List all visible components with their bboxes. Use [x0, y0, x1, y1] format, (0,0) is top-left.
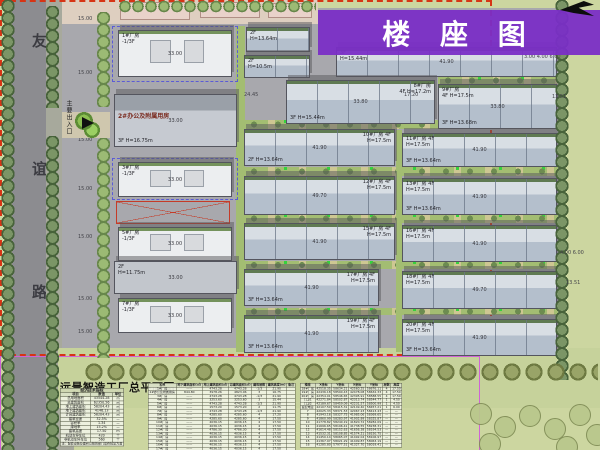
- building-dimension: 33.00: [115, 275, 236, 281]
- econ-indicators-table: 经济技术指标项目数值单位总用地面积43544.28㎡总建筑面积62350.56㎡…: [60, 388, 124, 446]
- dimension-text: 4.00 6.00: [560, 250, 584, 256]
- tree-row: [96, 138, 111, 358]
- building-label: H=17.5m: [367, 232, 391, 238]
- building-label: 4F H=17.5m: [442, 93, 474, 99]
- building-label: 3F H=16.75m: [118, 138, 153, 144]
- table-cell: 41285.80: [315, 443, 332, 447]
- building-x: [116, 201, 230, 224]
- tree-row: [118, 0, 316, 13]
- building-dimension: 41.90: [245, 285, 378, 291]
- building-5: 5#厂房-1/3F33.00: [118, 227, 232, 261]
- building-dimension: 33.00: [115, 118, 236, 124]
- building-label: 2F H=13.64m: [248, 157, 283, 163]
- scatter-tree: [556, 436, 578, 450]
- scatter-tree: [470, 403, 492, 425]
- building-label: -1/3F: [122, 39, 135, 45]
- dimension-text: 15.00: [78, 234, 92, 240]
- building-dimension: 33.00: [119, 51, 231, 57]
- scatter-tree: [519, 405, 541, 427]
- building-label: H=17.5m: [367, 185, 391, 191]
- dimension-text: 15.00: [78, 70, 92, 76]
- building-label: H=17.5m: [351, 278, 375, 284]
- building-label: H=17.5m: [406, 187, 430, 193]
- econ-indicators-table: 经济技术指标项目数值单位总用地面积43544.28㎡总建筑面积62350.56㎡…: [60, 388, 124, 446]
- building-s2: 2FH=10.5m: [244, 55, 310, 78]
- building-16: 16#厂房 4FH=17.5m41.90: [402, 225, 557, 262]
- building-label: 3F H=13.64m: [406, 206, 441, 212]
- building-label: H=17.5m: [406, 280, 430, 286]
- building-dimension: 33.80: [287, 99, 434, 105]
- table-note: 注：配套设施及面积以规划部门最终批复为准: [60, 442, 123, 446]
- building-label: 3F H=15.44m: [290, 115, 325, 121]
- building-label: 3F H=13.68m: [442, 120, 477, 126]
- building-dimension: 49.70: [403, 287, 556, 293]
- building-dimension: 41.90: [245, 145, 394, 151]
- building-dimension: 33.00: [119, 177, 231, 183]
- building-schedule-table: 名称地下建筑面积(㎡)地上建筑面积(㎡)总建筑面积(㎡)建筑层数建筑高度(m)备…: [148, 383, 296, 450]
- building-label: H=10.5m: [248, 64, 272, 70]
- site-plan: 友 谊 路 1#厂房-1/3F33.002#办公及附属用房3F H=16.75m…: [0, 0, 600, 450]
- building-7: 7#厂房-1/3F33.00: [118, 298, 232, 333]
- building-dimension: 41.90: [245, 239, 394, 245]
- building-dimension: 41.90: [403, 335, 556, 341]
- building-label: 3F H=13.64m: [406, 158, 441, 164]
- table-header-cell: 备注: [287, 383, 296, 387]
- scatter-tree: [479, 433, 501, 450]
- building-label: H=17.5m: [367, 138, 391, 144]
- building-label: H=17.5m: [406, 328, 430, 334]
- building-s1: 2FH=13.64m: [246, 27, 310, 52]
- scatter-tree: [586, 424, 600, 446]
- building-20: 20#厂房 4FH=17.5m3F H=13.64m41.90: [402, 319, 557, 356]
- building-1: 1#厂房-1/3F33.00: [118, 30, 232, 77]
- building-schedule-table: 名称地下建筑面积(㎡)地上建筑面积(㎡)总建筑面积(㎡)建筑层数建筑高度(m)备…: [148, 383, 296, 450]
- dimension-text: 15.00: [78, 16, 92, 22]
- building-label: H=17.5m: [351, 324, 375, 330]
- building-dimension: 41.90: [403, 241, 556, 247]
- building-13: 13#厂房 4FH=17.5m3F H=13.64m41.90: [402, 178, 557, 215]
- building-dimension: 41.90: [403, 147, 556, 153]
- table-cell: 58019.41: [366, 443, 383, 447]
- tree-row: [96, 12, 111, 107]
- table-cell: 57977.51: [332, 443, 349, 447]
- building-18: 18#厂房 4FH=17.5m49.70: [402, 271, 557, 309]
- building-label: 3F H=13.64m: [248, 344, 283, 350]
- building-2: 2#办公及附属用房3F H=16.75m33.00: [114, 94, 237, 147]
- table-cell: 41327.70: [349, 443, 366, 447]
- building-9: 9#厂房4F H=17.5m3F H=13.68m33.80: [438, 84, 557, 129]
- building-label: H=17.5m: [406, 234, 430, 240]
- building-dimension: 41.90: [245, 331, 378, 337]
- tree-row: [44, 136, 61, 450]
- dimension-text: 13.51: [552, 94, 566, 100]
- building-dimension: 33.00: [119, 241, 231, 247]
- title-banner: 楼 座 图: [318, 10, 600, 55]
- lawn-strip: [438, 77, 558, 84]
- coordinates-table: 楼座X坐标Y坐标X坐标Y坐标层数高度18#厂房42518.3558634.214…: [300, 383, 402, 447]
- building-3: 3#厂房-1/3F33.00: [118, 162, 232, 197]
- banner-title: 楼 座 图: [382, 13, 536, 53]
- building-dimension: 33.80: [439, 104, 556, 110]
- scatter-tree: [569, 404, 591, 426]
- building-8: 8#厂房4F H=17.2m3F H=15.44m33.80: [286, 80, 435, 124]
- coordinates-table: 楼座X坐标Y坐标X坐标Y坐标层数高度18#厂房42518.3558634.214…: [300, 383, 402, 447]
- building-dimension: 41.90: [403, 194, 556, 200]
- building-15: 15#厂房 4FH=17.5m41.90: [244, 223, 395, 260]
- dimension-text: 15.00: [78, 329, 92, 335]
- dimension-text: 15.00: [78, 296, 92, 302]
- scatter-tree: [494, 416, 516, 438]
- building-dimension: 33.00: [119, 313, 231, 319]
- table-cell: 16: [300, 443, 315, 447]
- entrance-label: 主要出入口: [64, 100, 73, 135]
- building-19: 19#厂房 4FH=17.5m3F H=13.64m41.90: [244, 315, 379, 353]
- building-dimension: 49.70: [245, 193, 394, 199]
- building-label: H=13.64m: [250, 36, 277, 42]
- building-12: 12#厂房 4FH=17.5m49.70: [244, 176, 395, 215]
- dimension-text: 24.45: [244, 92, 258, 98]
- dimension-text: 17.20: [404, 92, 418, 98]
- building-11: 11#厂房 4FH=17.5m3F H=13.64m41.90: [402, 133, 557, 167]
- dimension-text: 13.51: [566, 280, 580, 286]
- table-cell: —: [382, 443, 391, 447]
- building-6a: 2FH=11.75m33.00: [114, 261, 237, 294]
- entrance-arrow-icon: [82, 117, 94, 129]
- table-cell: 非机动车停车位: [60, 438, 90, 442]
- building-10: 10#厂房 4FH=17.5m2F H=13.64m41.90: [244, 129, 395, 166]
- building-label: 3F H=13.64m: [248, 297, 283, 303]
- tree-row: [44, 6, 61, 108]
- building-17: 17#厂房 4FH=17.5m3F H=13.64m41.90: [244, 269, 379, 306]
- table-cell: —: [391, 443, 402, 447]
- tree-row: [0, 0, 16, 450]
- dimension-text: 15.00: [78, 186, 92, 192]
